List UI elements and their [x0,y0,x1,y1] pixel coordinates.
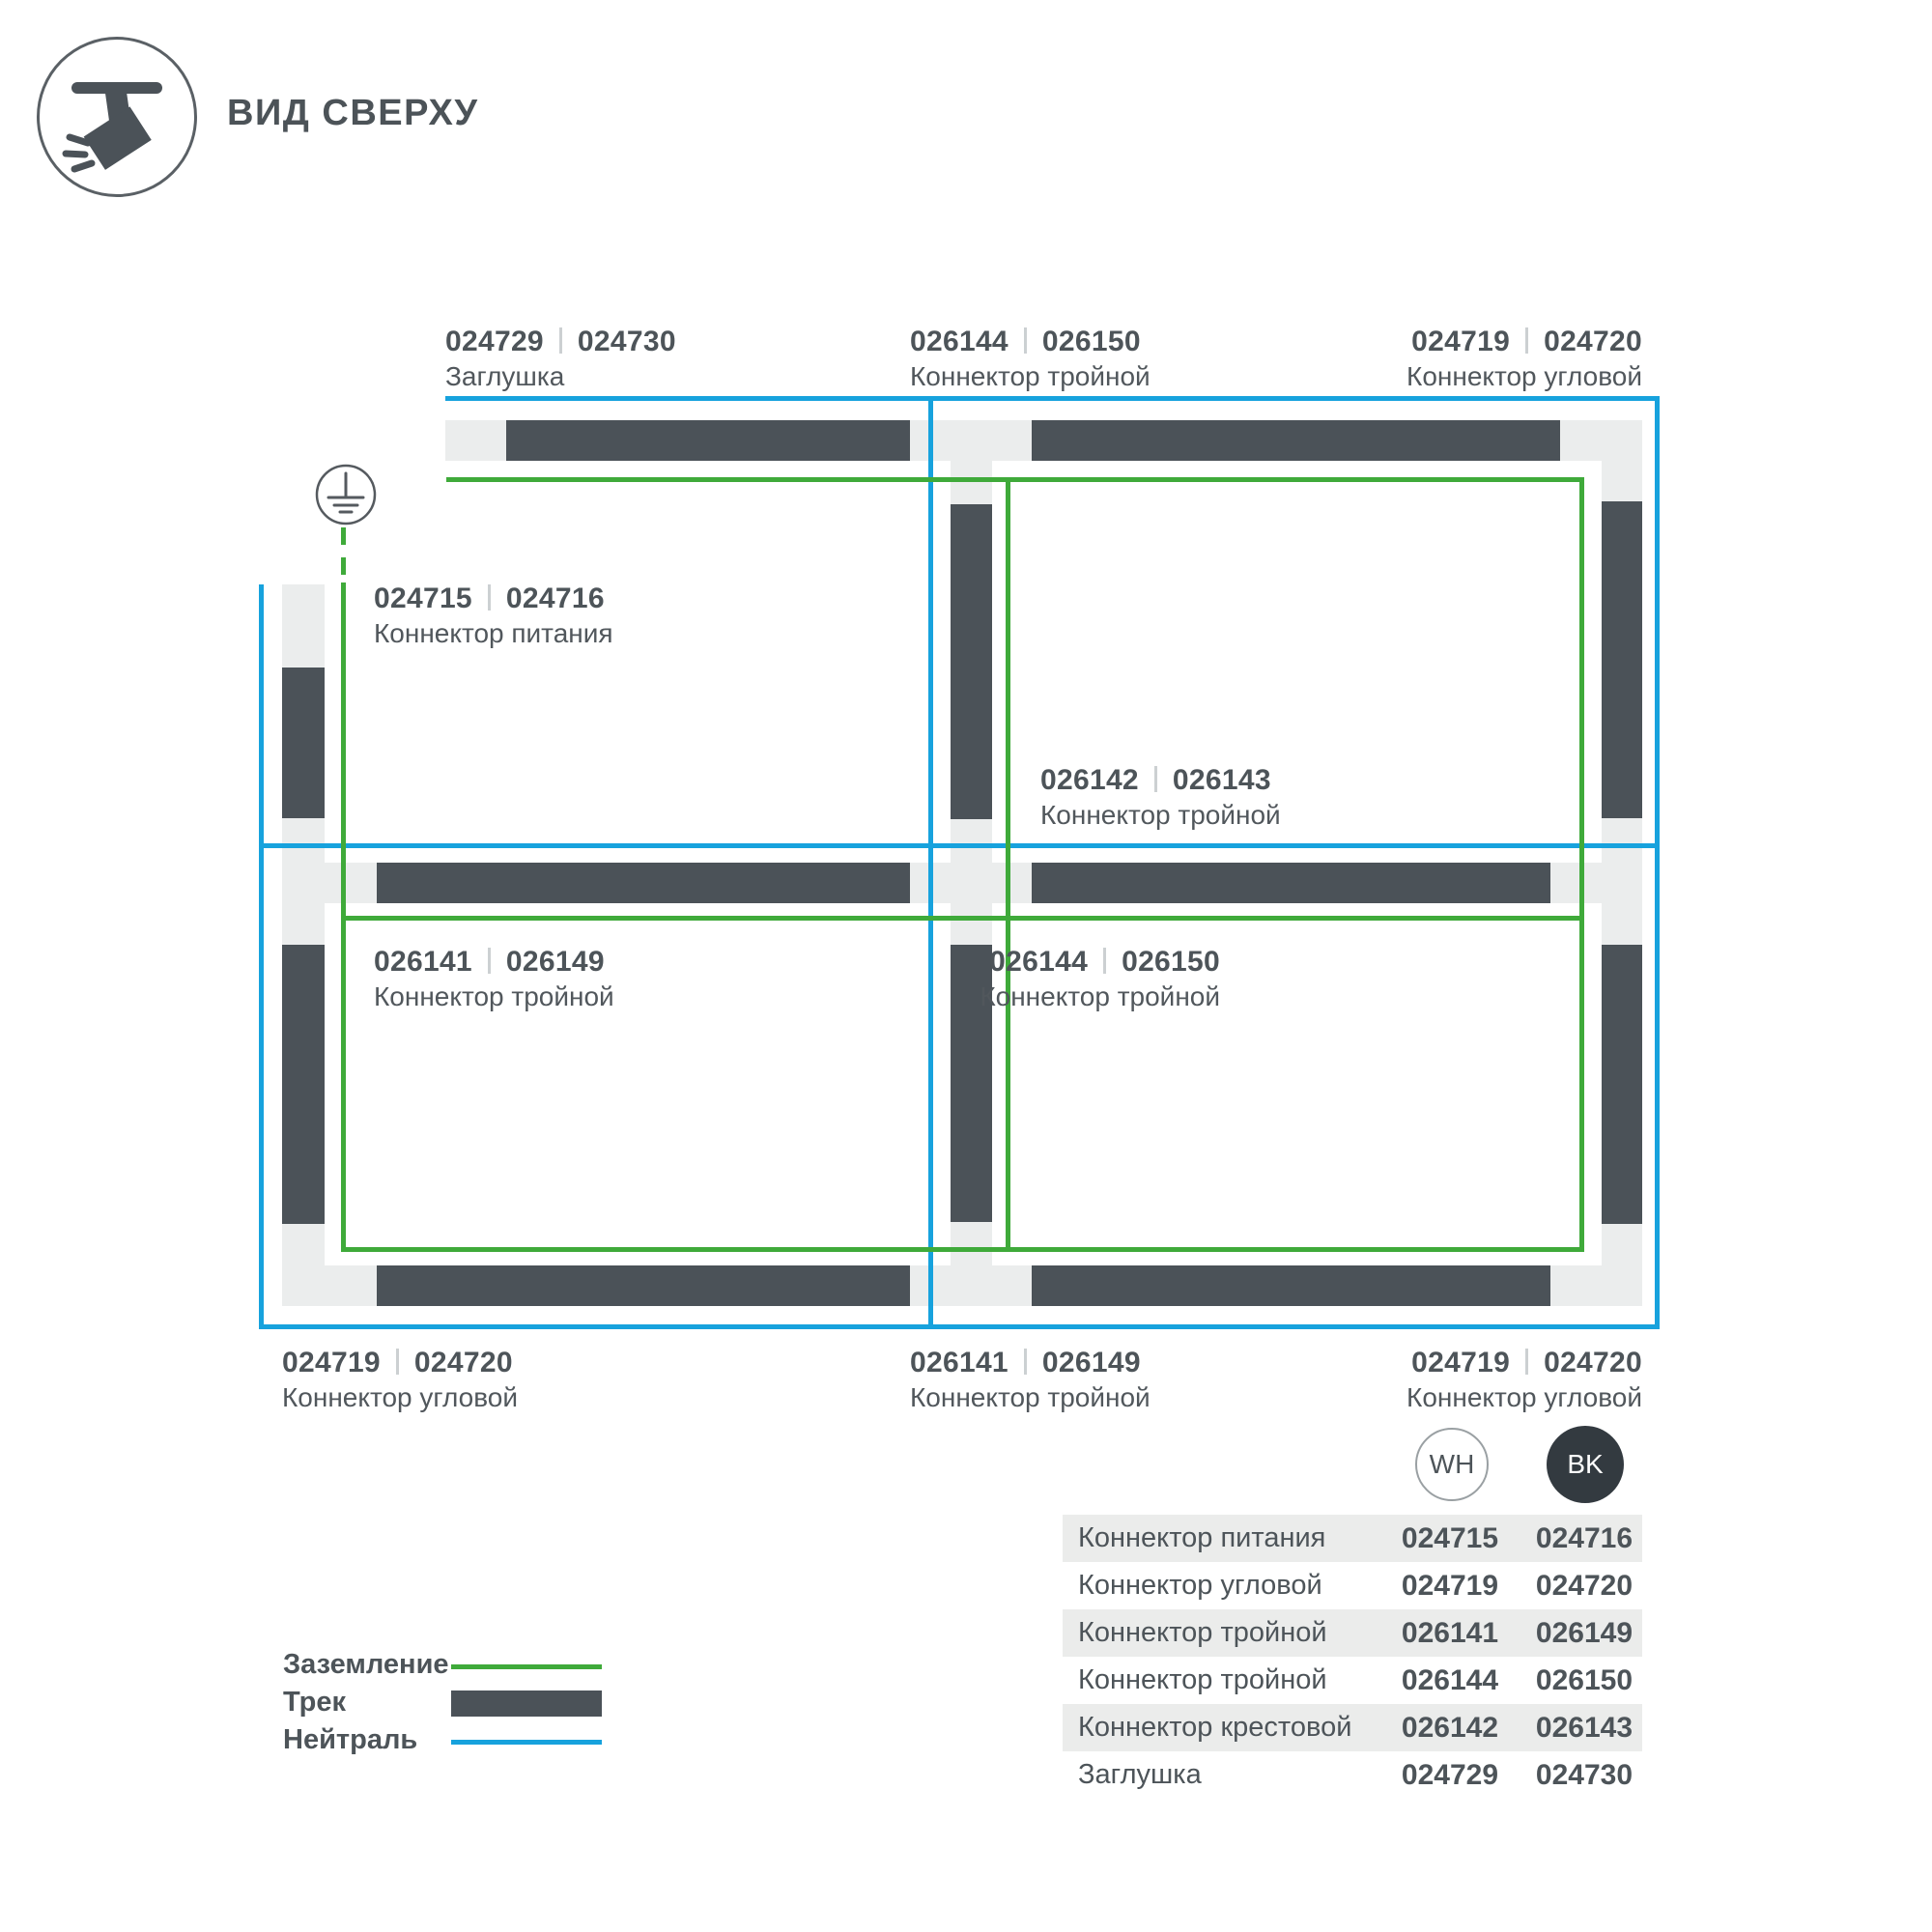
corner-connector [1602,420,1642,501]
tee-connector-stem [325,863,377,903]
neutral-line-left [259,584,264,1329]
track-segment [282,945,325,1224]
track-segment [1032,420,1560,461]
table-row: Заглушка 024729 024730 [1063,1751,1642,1799]
track-segment [506,420,910,461]
part-label-right-tee: 026144026150 Коннектор тройной [980,947,1220,1011]
track-light-icon [37,37,197,197]
earth-ground-icon [314,463,378,526]
page-title: ВИД СВЕРХУ [227,93,479,134]
track-segment [951,504,992,819]
table-row: Коннектор питания 024715 024716 [1063,1515,1642,1562]
label-divider [559,327,562,354]
neutral-line-top [445,396,1660,401]
corner-connector [1550,1265,1642,1306]
part-label-cross: 026142026143 Коннектор тройной [1040,765,1281,830]
part-label-left-tee: 026141026149 Коннектор тройной [374,947,614,1011]
tee-connector [1602,818,1642,945]
label-divider [488,584,491,611]
track-segment [377,863,910,903]
black-color-badge: BK [1547,1426,1624,1503]
label-divider [488,948,491,974]
ground-line-top [446,477,1584,482]
track-bar-swatch [451,1690,602,1717]
end-cap-connector [445,420,506,461]
ground-line-swatch [451,1664,602,1669]
neutral-line-bottom [259,1324,1660,1329]
neutral-line-center-vertical [928,396,933,1329]
table-row: Коннектор крестовой 026142 026143 [1063,1704,1642,1751]
power-connector [282,584,325,668]
part-label-bottom-right-corner: 024719024720 Коннектор угловой [1406,1348,1642,1412]
part-label-power: 024715024716 Коннектор питания [374,583,613,648]
tee-connector-stem [951,461,992,504]
track-segment [377,1265,910,1306]
label-divider [1154,766,1157,792]
part-label-bottom-left-corner: 024719024720 Коннектор угловой [282,1348,518,1412]
track-segment [1602,945,1642,1224]
tee-connector-stem [1550,863,1602,903]
part-label-bottom-tee: 026141026149 Коннектор тройной [910,1348,1151,1412]
neutral-line-middle [259,843,1660,848]
track-segment [282,668,325,818]
ground-dashed-lead [341,527,346,582]
legend-item-track: Трек [283,1686,611,1719]
ground-line-center-vertical [1006,477,1010,1252]
label-divider [1024,1349,1027,1375]
ground-line-right [1579,477,1584,1252]
part-label-top-corner: 024719024720 Коннектор угловой [1406,327,1642,391]
table-row: Коннектор тройной 026141 026149 [1063,1609,1642,1657]
label-divider [1024,327,1027,354]
legend-item-neutral: Нейтраль [283,1723,611,1756]
track-segment [1032,1265,1550,1306]
parts-table: Коннектор питания 024715 024716 Коннекто… [1063,1515,1642,1799]
table-row: Коннектор угловой 024719 024720 [1063,1562,1642,1609]
ground-line-bottom [341,1247,1584,1252]
tee-connector [282,818,325,945]
track-segment [1032,863,1550,903]
label-divider [1525,327,1528,354]
ground-line-middle [341,916,1584,921]
corner-connector [282,1265,377,1306]
part-label-top-tee: 026144026150 Коннектор тройной [910,327,1151,391]
label-divider [1103,948,1106,974]
white-color-badge: WH [1415,1428,1489,1501]
track-segment [1602,501,1642,818]
label-divider [396,1349,399,1375]
page: { "header": { "title": "ВИД СВЕРХУ" }, "… [0,0,1932,1932]
tee-connector-stem [951,1222,992,1265]
table-row: Коннектор тройной 026144 026150 [1063,1657,1642,1704]
neutral-line-right [1655,396,1660,1329]
part-label-endcap: 024729024730 Заглушка [445,327,676,391]
neutral-line-swatch [451,1740,602,1745]
label-divider [1525,1349,1528,1375]
legend-item-ground: Заземление [283,1648,611,1681]
